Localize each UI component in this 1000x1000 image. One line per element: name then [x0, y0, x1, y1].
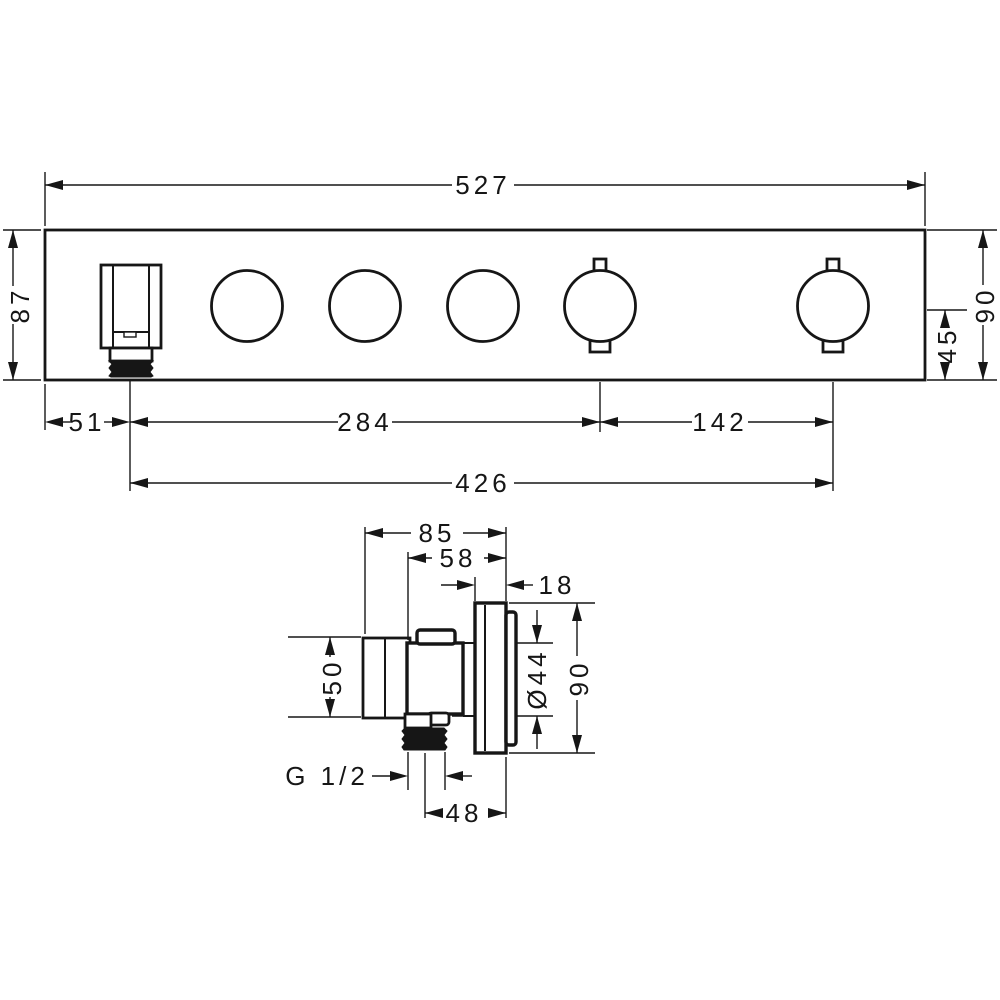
dim-handle-span: 142	[600, 382, 833, 491]
dim-label-284: 284	[337, 407, 392, 437]
escutcheon-disc	[475, 603, 506, 753]
dim-label-527: 527	[455, 170, 510, 200]
dim-total-width: 527	[45, 170, 925, 226]
outlet-neck	[405, 714, 431, 728]
knob-circle-1	[212, 271, 283, 342]
annotation-thread: G 1/2	[285, 752, 472, 791]
knob-circle-3	[448, 271, 519, 342]
dim-knob-span: 284	[130, 382, 600, 437]
side-view: 85 58 18 50	[285, 518, 595, 828]
dim-label-48: 48	[446, 798, 483, 828]
dim-label-45: 45	[932, 327, 962, 364]
dim-label-90-side: 90	[564, 660, 594, 697]
fitting-notch	[124, 332, 136, 337]
dim-label-o44: Ø44	[522, 648, 552, 709]
dim-escutcheon-depth: 18	[441, 570, 575, 601]
escutcheon	[475, 603, 516, 753]
dim-label-g12: G 1/2	[285, 761, 369, 791]
cartridge-housing	[407, 643, 463, 714]
dim-label-87: 87	[5, 287, 35, 324]
outlet-fitting	[101, 265, 161, 377]
dimension-drawing: 527 87 51 284	[0, 0, 1000, 1000]
dim-label-18: 18	[539, 570, 576, 600]
dim-label-90-right: 90	[970, 287, 1000, 324]
knob-circle-2	[330, 271, 401, 342]
dim-body-height: 50	[288, 637, 361, 717]
handle-circle-4	[565, 271, 636, 342]
handle-circle-5	[798, 271, 869, 342]
dim-label-50: 50	[317, 659, 347, 696]
dim-label-51: 51	[69, 407, 106, 437]
dim-span-total: 426	[130, 468, 833, 498]
dim-outlet-offset: 51	[45, 379, 130, 491]
fitting-neck	[110, 348, 152, 361]
dim-outlet-offset-side: 48	[425, 753, 506, 828]
dim-label-426: 426	[455, 468, 510, 498]
escutcheon-front-cap	[506, 612, 516, 745]
technical-drawing-canvas: 527 87 51 284	[0, 0, 1000, 1000]
dim-height-left: 87	[3, 230, 41, 380]
fitting-thread	[109, 361, 153, 377]
dim-center-to-bottom: 45	[927, 310, 967, 380]
outlet-thread	[402, 728, 447, 750]
top-clip	[417, 630, 455, 644]
front-view: 527 87 51 284	[3, 170, 1000, 498]
valve-body-back	[363, 638, 410, 718]
dim-label-58: 58	[440, 543, 477, 573]
dim-label-142: 142	[692, 407, 747, 437]
